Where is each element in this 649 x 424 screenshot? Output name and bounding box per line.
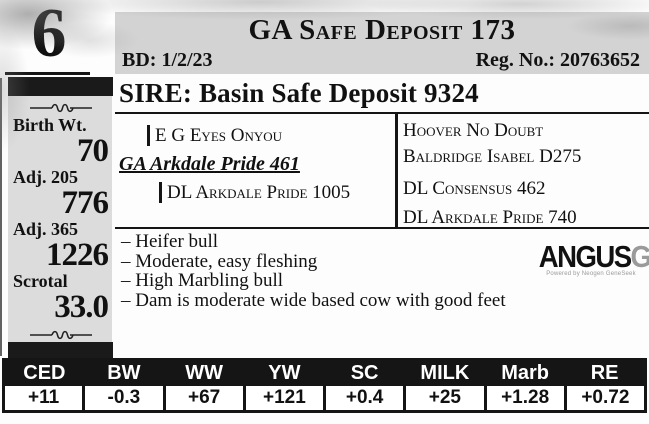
pedigree-dam-name: GA Arkdale Pride 461 [119, 152, 395, 176]
pedigree-ancestor: Baldridge Isabel D275 [403, 145, 649, 168]
epd-column-header: BW [84, 360, 164, 387]
sidebar-bottom-bar [8, 342, 113, 358]
pedigree-maternal-grandsire: E G Eyes Onyou [147, 124, 395, 147]
epd-value-cell: +11 [4, 386, 84, 412]
pedigree-entry: DL Arkdale Pride 1005 [159, 182, 350, 203]
angus-gs-wordmark: ANGUSGS [539, 242, 649, 271]
stat-value-adj-365: 1226 [13, 241, 108, 270]
sale-catalog-page: 6 GA Safe Deposit 173 BD: 1/2/23 Reg. No… [0, 0, 649, 424]
animal-header: GA Safe Deposit 173 BD: 1/2/23 Reg. No.:… [115, 12, 649, 74]
lot-number: 6 [8, 0, 90, 72]
sire-heading: SIRE: Basin Safe Deposit 9324 [115, 76, 649, 112]
pedigree-ancestor: DL Consensus 462 [403, 177, 649, 200]
epd-value-cell: -0.3 [84, 386, 164, 412]
angus-gs-logo: ANGUSGS Powered by Neogen GeneSeek [540, 244, 642, 278]
epd-header-row: CED BW WW YW SC MILK Marb RE [4, 360, 646, 387]
birth-date: BD: 1/2/23 [122, 49, 213, 72]
epd-column-header: CED [4, 360, 84, 387]
epd-value-cell: +0.72 [565, 386, 645, 412]
header-meta-row: BD: 1/2/23 Reg. No.: 20763652 [122, 49, 640, 72]
pedigree-maternal-granddam: DL Arkdale Pride 1005 [159, 181, 395, 204]
pedigree-dam-side: E G Eyes Onyou GA Arkdale Pride 461 DL A… [115, 114, 395, 227]
epd-column-header: SC [325, 360, 405, 387]
stats-sidebar: Birth Wt. 70 Adj. 205 776 Adj. 365 1226 … [8, 96, 112, 342]
epd-value-cell: +67 [164, 386, 244, 412]
pedigree-panel: E G Eyes Onyou GA Arkdale Pride 461 DL A… [115, 112, 649, 229]
epd-column-header: YW [244, 360, 324, 387]
ornament-icon [28, 329, 94, 341]
animal-name-title: GA Safe Deposit 173 [115, 13, 649, 47]
epd-value-cell: +25 [405, 386, 485, 412]
epd-table: CED BW WW YW SC MILK Marb RE +11 -0.3 +6… [2, 358, 647, 413]
logo-brand-text: ANGUS [539, 240, 631, 274]
epd-value-cell: +0.4 [325, 386, 405, 412]
pedigree-ancestor: Hoover No Doubt [403, 119, 649, 142]
lot-number-underline [5, 72, 90, 75]
epd-column-header: Marb [485, 360, 565, 387]
stat-value-adj-205: 776 [13, 189, 108, 218]
scan-edge-artifact [0, 78, 2, 356]
note-line: – Dam is moderate wide based cow with go… [121, 291, 649, 311]
sidebar-top-bar [8, 77, 113, 96]
epd-value-cell: +121 [244, 386, 324, 412]
pedigree-ancestor-column: Hoover No Doubt Baldridge Isabel D275 DL… [395, 114, 649, 227]
epd-value-cell: +1.28 [485, 386, 565, 412]
stat-value-birth-wt: 70 [13, 137, 108, 166]
pedigree-entry: E G Eyes Onyou [147, 125, 282, 146]
epd-column-header: RE [565, 360, 645, 387]
pedigree-ancestor: DL Arkdale Pride 740 [403, 206, 649, 229]
epd-column-header: MILK [405, 360, 485, 387]
epd-column-header: WW [164, 360, 244, 387]
epd-value-row: +11 -0.3 +67 +121 +0.4 +25 +1.28 +0.72 [4, 386, 646, 412]
ornament-icon [28, 102, 94, 114]
registration-number: Reg. No.: 20763652 [476, 49, 640, 72]
logo-suffix-text: GS [631, 240, 649, 274]
stat-value-scrotal: 33.0 [13, 293, 108, 322]
